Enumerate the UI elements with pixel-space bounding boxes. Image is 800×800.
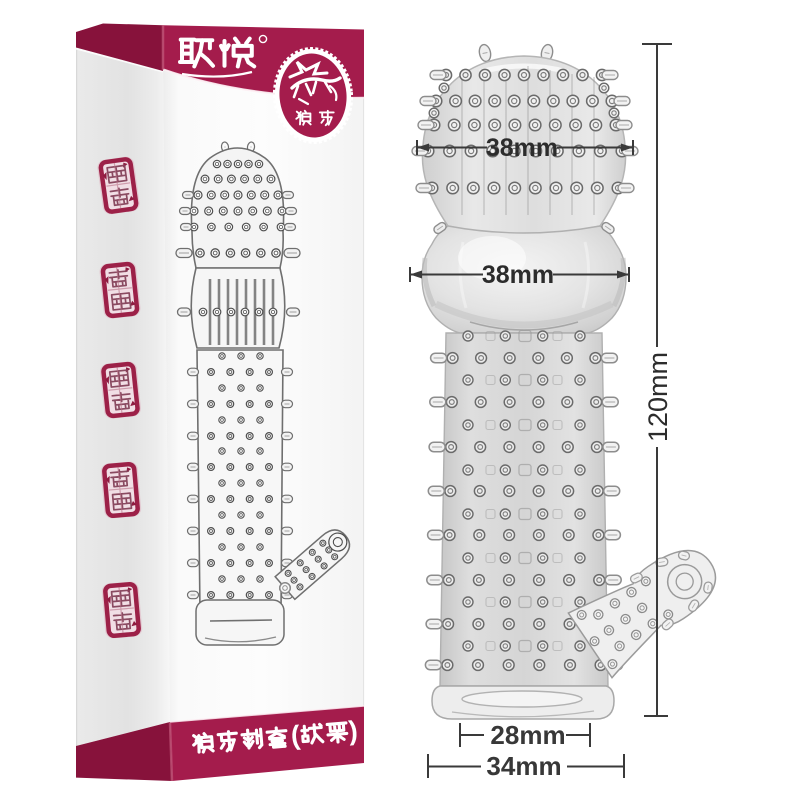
svg-text:28mm: 28mm (490, 720, 565, 750)
svg-text:38mm: 38mm (482, 261, 554, 289)
svg-text:38mm: 38mm (486, 134, 558, 162)
svg-text:120mm: 120mm (643, 352, 673, 442)
svg-text:34mm: 34mm (486, 751, 561, 781)
